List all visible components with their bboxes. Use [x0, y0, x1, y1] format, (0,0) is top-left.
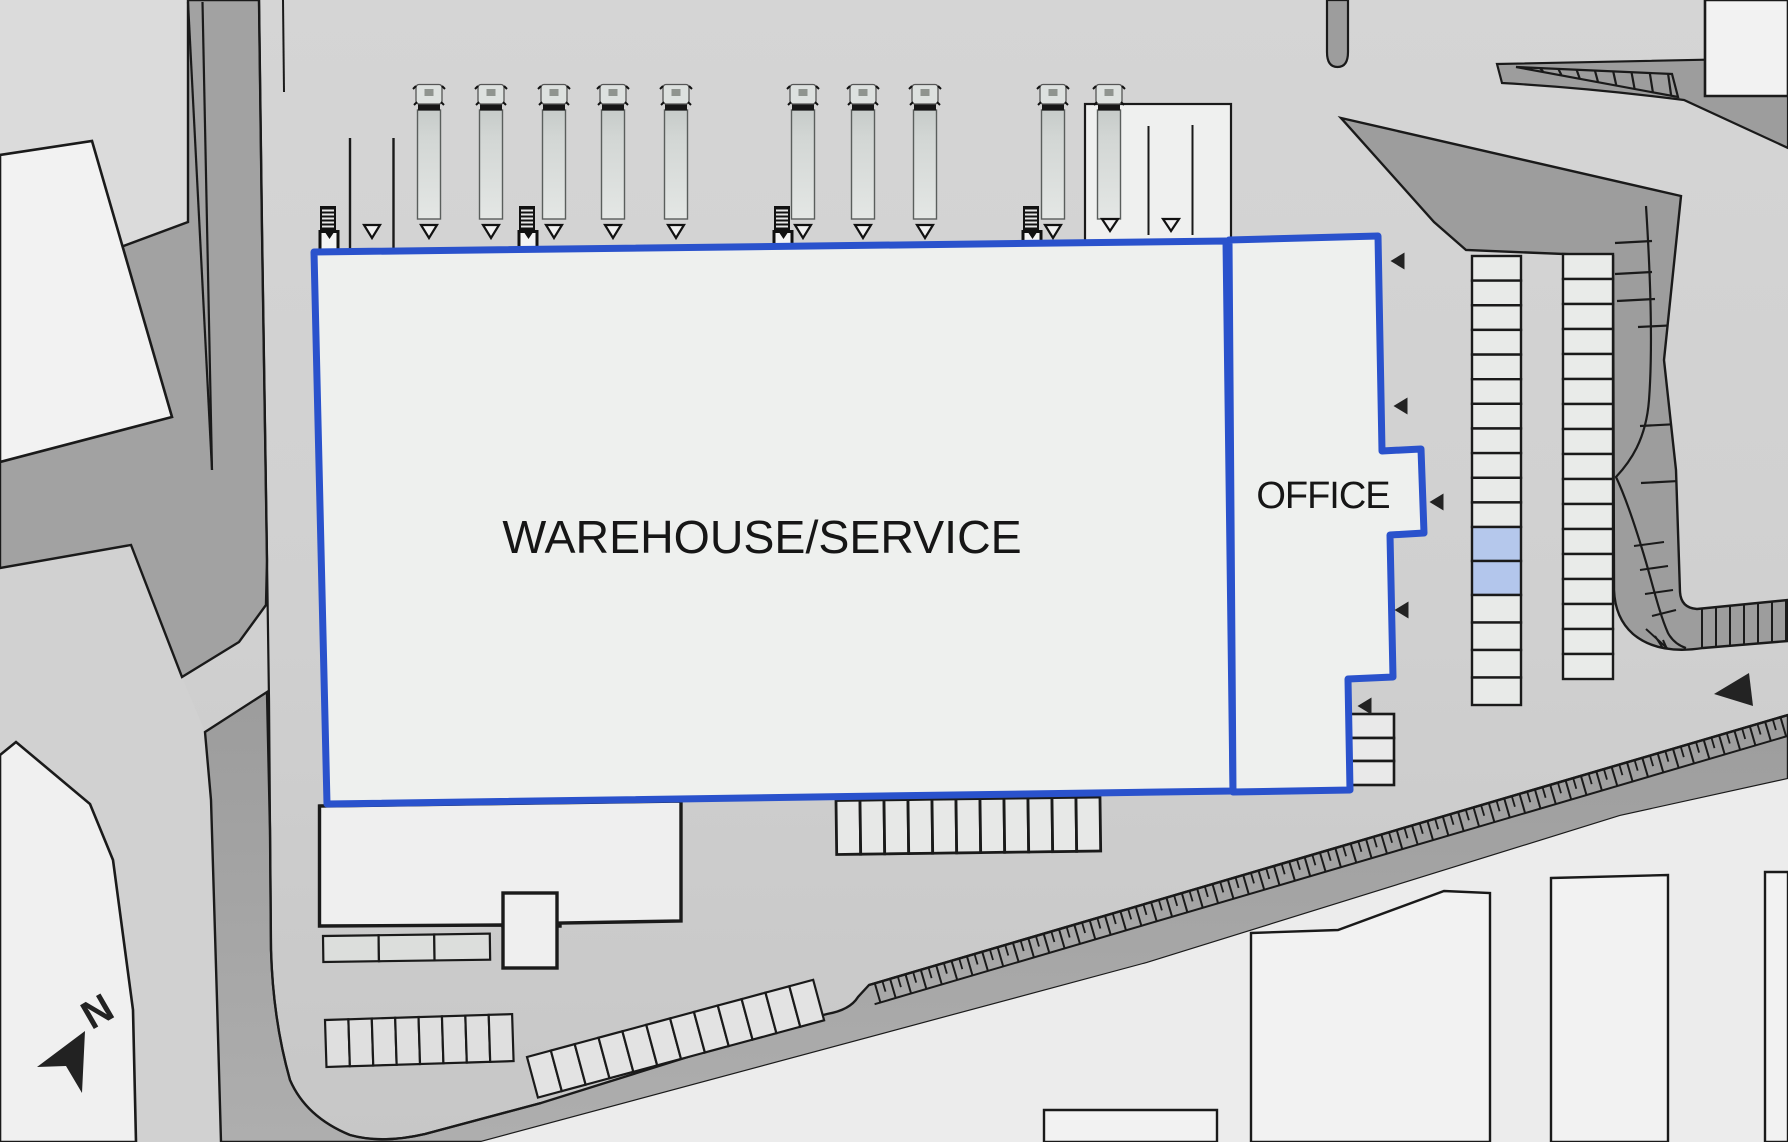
svg-text:WAREHOUSE/SERVICE: WAREHOUSE/SERVICE [502, 511, 1021, 563]
svg-text:OFFICE: OFFICE [1256, 475, 1389, 517]
